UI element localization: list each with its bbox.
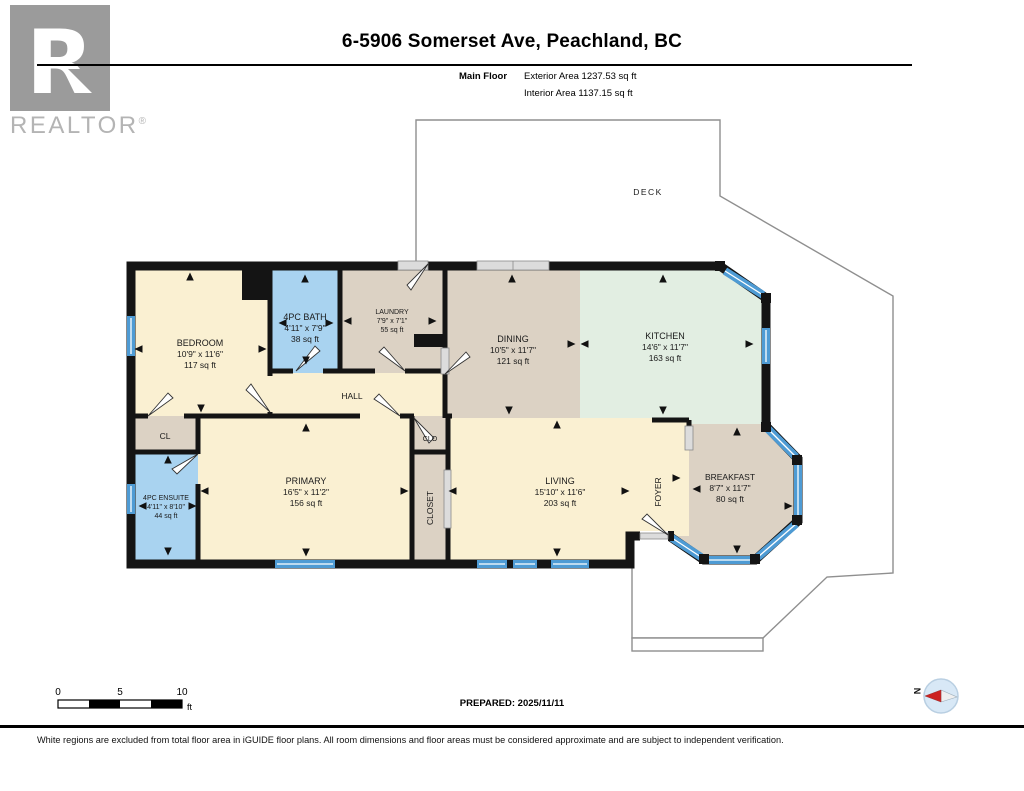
breakfast-area: 80 sq ft [716,494,745,504]
floorplan-drawing: DECK [0,0,1024,791]
ensuite-name: 4PC ENSUITE [143,495,189,502]
bath-name: 4PC BATH [283,312,326,322]
scale-tick-0: 0 [55,687,61,698]
scale-tick-5: 5 [117,687,123,698]
kitchen-area: 163 sq ft [649,353,682,363]
breakfast-dims: 8'7" x 11'7" [709,483,750,493]
dining-door-slab [441,348,449,374]
scale-unit: ft [187,702,193,712]
floorplan-page: R REALTOR® 6-5906 Somerset Ave, Peachlan… [0,0,1024,791]
kitchen-name: KITCHEN [645,331,685,341]
living-dims: 15'10" x 11'6" [535,487,586,497]
clo-label: CLO [423,436,438,443]
foyer-label: FOYER [653,477,663,506]
scale-tick-10: 10 [176,687,188,698]
porch-step [632,638,763,651]
wall-jog [414,334,445,347]
dining-area: 121 sq ft [497,356,530,366]
ensuite-area: 44 sq ft [155,513,178,520]
dining-dims: 10'5" x 11'7" [490,345,536,355]
bath-dims: 4'11" x 7'9" [284,323,325,333]
cl-label: CL [160,431,171,441]
foyer-door-slab [685,426,693,450]
north-label: N [912,688,922,695]
room-foyer-floor [630,418,689,536]
scale-bar: 0 5 10 ft [55,687,192,712]
dining-name: DINING [497,334,529,344]
breakfast-name: BREAKFAST [705,472,755,482]
hall-label: HALL [341,391,363,401]
compass-icon: N [912,679,958,713]
closet-slider [444,470,451,528]
laundry-name: LAUNDRY [375,309,409,316]
primary-area: 156 sq ft [290,498,323,508]
footer-divider [0,725,1024,728]
bedroom-name: BEDROOM [177,338,224,348]
disclaimer-text: White regions are excluded from total fl… [37,735,997,745]
living-area: 203 sq ft [544,498,577,508]
closet-label: CLOSET [425,491,435,525]
living-name: LIVING [545,476,575,486]
laundry-dims: 7'9" x 7'1" [377,318,408,325]
deck-label: DECK [633,187,663,197]
primary-dims: 16'5" x 11'2" [283,487,329,497]
entry-door-slab [640,533,668,539]
bedroom-dims: 10'9" x 11'6" [177,349,223,359]
kitchen-dims: 14'6" x 11'7" [642,342,688,352]
wall-notch [242,266,270,300]
laundry-area: 55 sq ft [381,327,404,334]
bath-area: 38 sq ft [291,334,320,344]
ensuite-dims: 4'11" x 8'10" [147,504,185,511]
prepared-date: PREPARED: 2025/11/11 [460,698,565,709]
bedroom-area: 117 sq ft [184,360,217,370]
primary-name: PRIMARY [286,476,327,486]
